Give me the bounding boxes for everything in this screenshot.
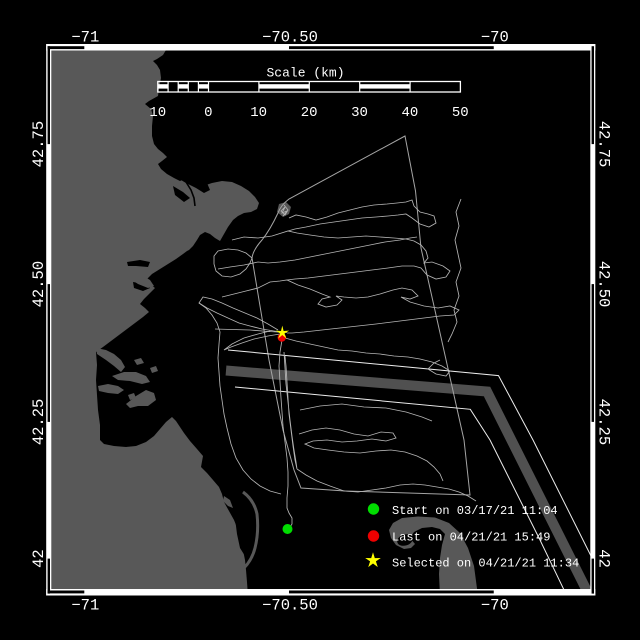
svg-text:−70.50: −70.50 (262, 596, 318, 614)
svg-text:20: 20 (301, 105, 318, 121)
svg-text:42: 42 (594, 549, 612, 568)
svg-text:42.25: 42.25 (594, 399, 612, 446)
svg-text:42: 42 (30, 549, 48, 568)
svg-text:Scale (km): Scale (km) (266, 66, 344, 81)
svg-text:−71: −71 (71, 29, 99, 47)
svg-text:42.75: 42.75 (594, 121, 612, 168)
svg-text:Selected on 04/21/21 11:34: Selected on 04/21/21 11:34 (392, 557, 579, 571)
svg-text:−70: −70 (481, 29, 509, 47)
svg-text:40: 40 (401, 105, 418, 121)
svg-text:−71: −71 (71, 596, 99, 614)
svg-text:42.75: 42.75 (30, 121, 48, 168)
svg-text:42.50: 42.50 (594, 261, 612, 308)
svg-text:42.25: 42.25 (30, 399, 48, 446)
svg-text:42.50: 42.50 (30, 261, 48, 308)
svg-text:30: 30 (351, 105, 368, 121)
svg-text:10: 10 (250, 105, 267, 121)
svg-text:Last on 04/21/21 15:49: Last on 04/21/21 15:49 (392, 531, 550, 545)
svg-text:50: 50 (452, 105, 469, 121)
svg-text:−70.50: −70.50 (262, 29, 318, 47)
svg-text:−70: −70 (481, 596, 509, 614)
svg-text:10: 10 (149, 105, 166, 121)
svg-text:0: 0 (204, 105, 212, 121)
svg-text:Start on 03/17/21 11:04: Start on 03/17/21 11:04 (392, 504, 558, 518)
